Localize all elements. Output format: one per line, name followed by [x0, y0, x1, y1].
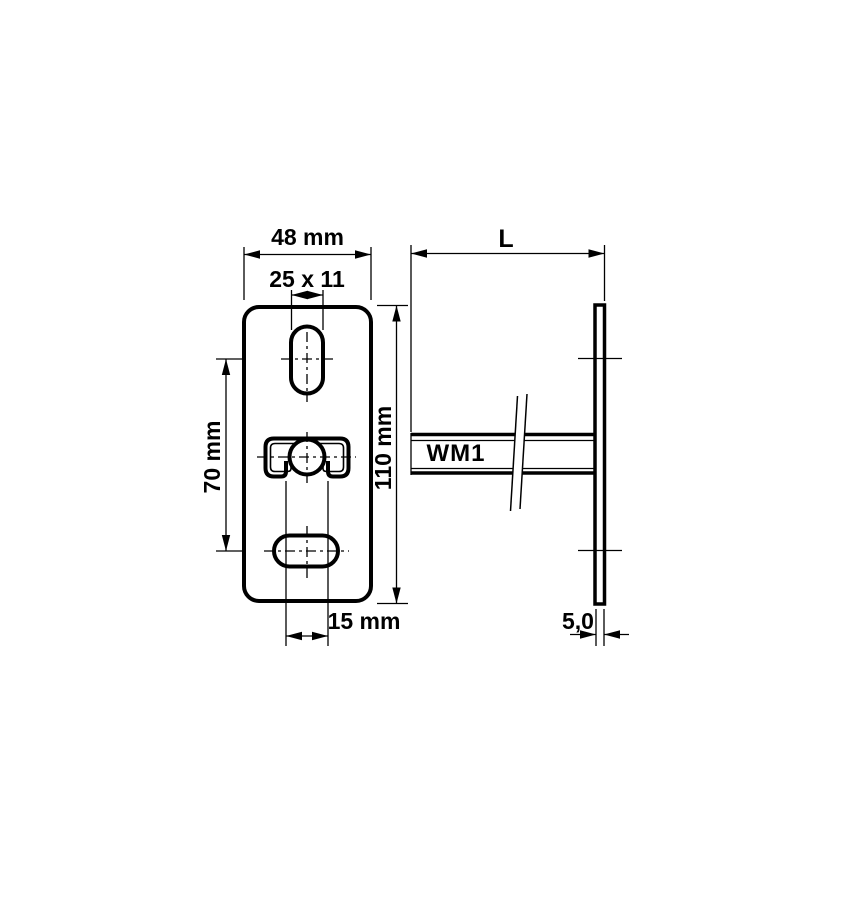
dim-48-arrow-right — [355, 250, 371, 258]
dim-plate-thickness: 5,0 — [562, 608, 629, 646]
dim-48-label: 48 mm — [271, 224, 344, 250]
dim-15-label: 15 mm — [328, 608, 401, 634]
dim-hole-spacing: 70 mm — [199, 359, 246, 551]
front-view — [244, 307, 371, 601]
dim-top-slot: 25 x 11 — [269, 266, 345, 330]
dim-70-arrow-top — [222, 359, 230, 375]
dim-25x11-label: 25 x 11 — [269, 266, 345, 292]
dim-25x11-arrow-right — [307, 291, 323, 299]
technical-drawing-page: WM1 48 mm 25 x 11 — [0, 0, 846, 900]
dim-rail-length: L — [411, 225, 605, 432]
side-plate — [595, 305, 605, 604]
dim-70-label: 70 mm — [199, 421, 225, 494]
rail: WM1 — [411, 394, 595, 511]
dim-15-arrow-left — [286, 632, 302, 640]
dim-L-label: L — [498, 225, 513, 253]
dim-5-label: 5,0 — [562, 608, 594, 634]
dim-plate-height: 110 mm — [370, 306, 408, 604]
bracket-drawing: WM1 48 mm 25 x 11 — [0, 0, 846, 900]
dim-L-arrow-left — [411, 249, 427, 257]
rail-label: WM1 — [427, 440, 486, 467]
dim-110-arrow-bottom — [392, 588, 400, 604]
dim-opening-width: 15 mm — [286, 481, 400, 646]
dim-48-arrow-left — [244, 250, 260, 258]
side-view: WM1 — [411, 305, 622, 604]
dim-110-arrow-top — [392, 306, 400, 322]
rail-break-gap — [511, 394, 528, 511]
dim-70-arrow-bottom — [222, 535, 230, 551]
dim-L-arrow-right — [589, 249, 605, 257]
dim-5-arrow-right — [604, 630, 620, 638]
dim-15-arrow-right — [312, 632, 328, 640]
dim-25x11-arrow-left — [292, 291, 308, 299]
dim-110-label: 110 mm — [370, 406, 396, 490]
